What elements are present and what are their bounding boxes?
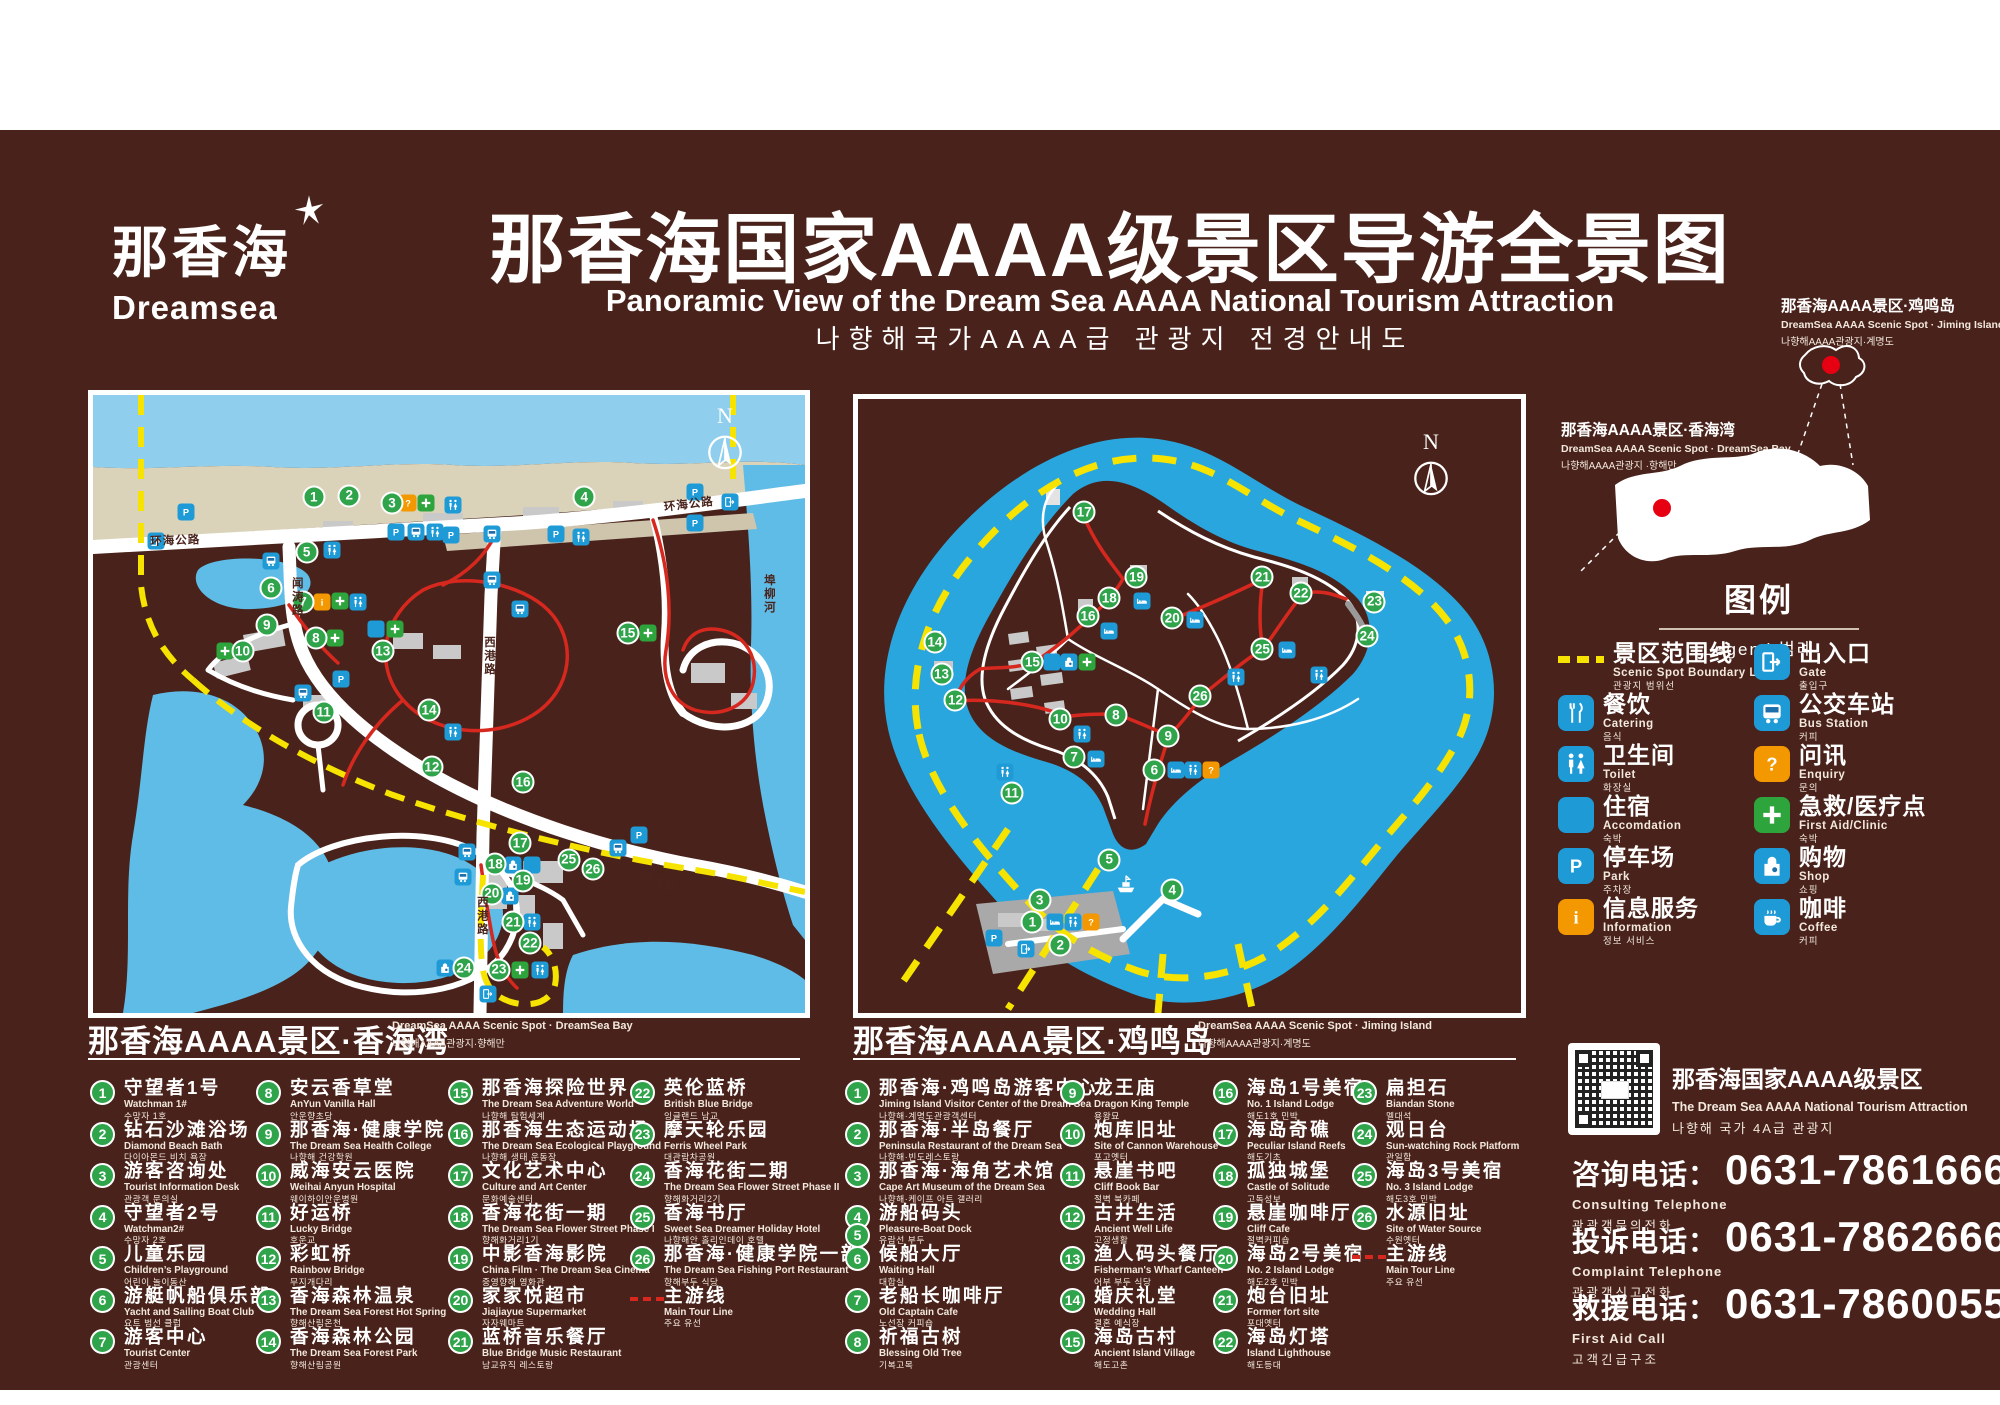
poster-title-cn: 那香海国家AAAA级景区导游全景图 bbox=[489, 188, 1731, 298]
legend-label-cn: 景区范围线 bbox=[1613, 642, 1775, 665]
aid-map-icon bbox=[327, 629, 344, 646]
item-number-badge: 17 bbox=[448, 1163, 473, 1188]
legend-label-kr: 주차장 bbox=[1603, 886, 1675, 896]
item-number-badge: 22 bbox=[1213, 1329, 1238, 1354]
legend-label-cn: 餐饮 bbox=[1603, 693, 1654, 716]
legend-label-kr: 출입구 bbox=[1799, 682, 1871, 692]
map-marker-11: 11 bbox=[1000, 782, 1023, 805]
item-name-cn: 水源旧址 bbox=[1386, 1204, 1582, 1223]
p-map-icon: P bbox=[177, 504, 194, 521]
legend-label-cn: 公交车站 bbox=[1799, 693, 1895, 716]
p-map-icon: P bbox=[332, 671, 349, 688]
list-item-2: 2那香海·半岛餐厅Peninsula Restaurant of the Dre… bbox=[845, 1121, 1075, 1163]
map-marker-3: 3 bbox=[1028, 889, 1051, 912]
road-label: 埠柳河 bbox=[761, 574, 777, 615]
item-number-badge: 2 bbox=[845, 1122, 870, 1147]
item-number-badge: 25 bbox=[1352, 1163, 1377, 1188]
item-name-cn: 那香海·健康学院一部 bbox=[664, 1245, 860, 1264]
p-map-icon: P bbox=[387, 524, 404, 541]
item-number-badge: 1 bbox=[845, 1080, 870, 1105]
p-map-icon: P bbox=[443, 527, 460, 544]
item-name-cn: 老船长咖啡厅 bbox=[879, 1287, 1075, 1306]
svg-text:i: i bbox=[1573, 908, 1578, 928]
item-number-badge: 20 bbox=[1213, 1246, 1238, 1271]
legend-label-en: Gate bbox=[1799, 668, 1871, 680]
phone-entry-3: 救援电话：0631-7860055First Aid Call고객긴급구조 bbox=[1572, 1280, 1972, 1368]
road-label: 西港路 bbox=[474, 896, 490, 937]
item-name-cn: 香海花街二期 bbox=[664, 1162, 860, 1181]
compass-n-label: N bbox=[717, 403, 733, 429]
legend-item-park: P停车场Park주차장 bbox=[1558, 846, 1754, 897]
map-marker-18: 18 bbox=[1098, 586, 1121, 609]
bus-map-icon bbox=[483, 526, 500, 543]
item-number-badge: 4 bbox=[90, 1205, 115, 1230]
legend-item-boundary: 景区范围线Scenic Spot Boundary Line관광지 범위선 bbox=[1558, 642, 1754, 693]
map-marker-5: 5 bbox=[1098, 848, 1121, 871]
cater-map-icon bbox=[367, 621, 384, 638]
road-label: 环海公路 bbox=[150, 531, 201, 549]
q-map-icon: ? bbox=[1082, 914, 1099, 931]
item-name-kr: 주요 유선 bbox=[1386, 1278, 1582, 1287]
item-name-en: Main Tour Line bbox=[1386, 1266, 1582, 1276]
map-marker-25: 25 bbox=[1251, 637, 1274, 660]
p-map-icon: P bbox=[547, 526, 564, 543]
toilet-icon bbox=[1558, 746, 1594, 782]
list-item-21: 21炮台旧址Former fort site포대옛터 bbox=[1213, 1287, 1443, 1329]
map-marker-20: 20 bbox=[1161, 607, 1184, 630]
item-name-cn: 扁担石 bbox=[1386, 1079, 1582, 1098]
wc-map-icon bbox=[426, 524, 443, 541]
item-name-en: Pleasure-Boat Dock bbox=[879, 1225, 1075, 1235]
legend-label-en: Enquiry bbox=[1799, 770, 1847, 782]
list-item-4: 45游船码头Pleasure-Boat Dock유람선 부두 bbox=[845, 1204, 1075, 1246]
poster-canvas: 那香海 Dreamsea 那香海国家AAAA级景区导游全景图 Panoramic… bbox=[0, 0, 2000, 1405]
map-marker-21: 21 bbox=[1251, 566, 1274, 589]
aid-map-icon bbox=[512, 961, 529, 978]
item-number-badge: 3 bbox=[845, 1163, 870, 1188]
phone-label-kr: 고객긴급구조 bbox=[1572, 1349, 1972, 1368]
aid-map-icon bbox=[418, 495, 435, 512]
map-marker-1: 1 bbox=[302, 485, 325, 508]
svg-text:P: P bbox=[1570, 856, 1582, 877]
legend-item-catering: 餐饮Catering음식 bbox=[1558, 693, 1754, 744]
bay-sea bbox=[93, 395, 805, 468]
map-marker-13: 13 bbox=[930, 663, 953, 686]
bed-map-icon bbox=[1278, 642, 1295, 659]
svg-text:P: P bbox=[692, 518, 698, 528]
legend-item-coffee: 咖啡Coffee커피 bbox=[1754, 897, 1960, 948]
bus-map-icon bbox=[295, 684, 312, 701]
legend-label-en: Information bbox=[1603, 923, 1699, 935]
item-number-badge: 9 bbox=[256, 1122, 281, 1147]
island-section-subtitle: DreamSea AAAA Scenic Spot · Jiming Islan… bbox=[1198, 1020, 1432, 1050]
item-name-en: Site of Water Source bbox=[1386, 1225, 1582, 1235]
item-number-badge: 19 bbox=[1213, 1205, 1238, 1230]
logo-en-text: Dreamsea bbox=[112, 289, 292, 327]
q-map-icon: ? bbox=[1202, 761, 1219, 778]
item-number-badge: 17 bbox=[1213, 1122, 1238, 1147]
bay-section-divider bbox=[88, 1058, 800, 1060]
item-name-cn: 主游线 bbox=[664, 1287, 860, 1306]
item-number-badge: 13 bbox=[256, 1288, 281, 1313]
inset-locator-map bbox=[1550, 280, 1960, 580]
item-name-en: British Blue Bridge bbox=[664, 1100, 860, 1110]
map-marker-9: 9 bbox=[255, 613, 278, 636]
item-number-badge: 21 bbox=[448, 1329, 473, 1354]
list-item-tour-line: 主游线Main Tour Line주요 유선 bbox=[630, 1287, 860, 1329]
p-map-icon: P bbox=[686, 514, 703, 531]
legend-label-cn: 急救/医疗点 bbox=[1799, 795, 1926, 818]
legend-label-cn: 出入口 bbox=[1799, 642, 1871, 665]
legend-label-en: Toilet bbox=[1603, 770, 1675, 782]
item-name-cn: 候船大厅 bbox=[879, 1245, 1075, 1264]
map-marker-13: 13 bbox=[371, 639, 394, 662]
item-name-cn: 英伦蓝桥 bbox=[664, 1079, 860, 1098]
wc-map-icon bbox=[1227, 668, 1244, 685]
gate-icon bbox=[1754, 644, 1790, 680]
wc-map-icon bbox=[524, 914, 541, 931]
aid-map-icon bbox=[1078, 653, 1095, 670]
qr-code bbox=[1568, 1043, 1660, 1135]
list-item-23: 23摩天轮乐园Ferris Wheel Park대관람차공원 bbox=[630, 1121, 860, 1163]
gate-map-icon bbox=[1017, 941, 1034, 958]
legend-label-kr: 문의 bbox=[1799, 784, 1847, 794]
logo-cn-text: 那香海 bbox=[112, 221, 292, 284]
item-name-en: Old Captain Cafe bbox=[879, 1308, 1075, 1318]
bed-map-icon bbox=[1168, 761, 1185, 778]
item-name-kr: 기복고목 bbox=[879, 1361, 1075, 1370]
map-marker-25: 25 bbox=[557, 848, 580, 871]
legend-label-kr: 숙박 bbox=[1799, 835, 1926, 845]
shop-map-icon bbox=[436, 959, 453, 976]
legend-item-accommodation: 住宿Accomdation숙박 bbox=[1558, 795, 1754, 846]
wc-map-icon bbox=[1064, 914, 1081, 931]
item-name-en: Blessing Old Tree bbox=[879, 1349, 1075, 1359]
list-item-24: 24香海花街二期The Dream Sea Flower Street Phas… bbox=[630, 1162, 860, 1204]
legend-divider bbox=[1659, 628, 1859, 630]
map-marker-11: 11 bbox=[312, 701, 335, 724]
map-marker-24: 24 bbox=[452, 956, 475, 979]
item-number-badge: 24 bbox=[1352, 1122, 1377, 1147]
map-marker-22: 22 bbox=[1289, 582, 1312, 605]
park-icon: P bbox=[1558, 848, 1594, 884]
map-marker-2: 2 bbox=[1049, 933, 1072, 956]
wc-map-icon bbox=[349, 594, 366, 611]
map-marker-18: 18 bbox=[484, 853, 507, 876]
map-marker-7: 7 bbox=[1063, 745, 1086, 768]
island-compass: N bbox=[1413, 429, 1449, 497]
list-item-1: 1那香海·鸡鸣岛游客中心Jiming Island Visitor Center… bbox=[845, 1079, 1075, 1121]
item-number-badge: 8 bbox=[845, 1329, 870, 1354]
item-number-badge: 10 bbox=[1060, 1122, 1085, 1147]
phone-number: 0631-7860055 bbox=[1725, 1280, 2000, 1328]
legend-label-kr: 관광지 범위선 bbox=[1613, 682, 1775, 692]
map-marker-6: 6 bbox=[260, 576, 283, 599]
phone-label-en: Consulting Telephone bbox=[1572, 1197, 1972, 1212]
road-label: 西港路 bbox=[481, 636, 497, 677]
item-name-en: Island Lighthouse bbox=[1247, 1349, 1443, 1359]
bus-map-icon bbox=[458, 844, 475, 861]
list-item-22: 22海岛灯塔Island Lighthouse해도등대 bbox=[1213, 1328, 1443, 1370]
item-number-badge: 7 bbox=[90, 1329, 115, 1354]
phone-number: 0631-7861666 bbox=[1725, 1146, 2000, 1194]
phone-label-cn: 救援电话： bbox=[1572, 1287, 1717, 1327]
item-number-badge: 20 bbox=[448, 1288, 473, 1313]
map-marker-17: 17 bbox=[1073, 500, 1096, 523]
inset-bay-coast-shape bbox=[1615, 449, 1870, 562]
bay-map: N ?PPPPPPiPP1234567891011121314151617181… bbox=[88, 390, 810, 1018]
coffee-icon bbox=[1754, 899, 1790, 935]
svg-text:?: ? bbox=[1766, 754, 1777, 775]
map-marker-8: 8 bbox=[1104, 704, 1127, 727]
legend-label-cn: 卫生间 bbox=[1603, 744, 1675, 767]
item-name-cn: 主游线 bbox=[1386, 1245, 1582, 1264]
p-map-icon: P bbox=[631, 827, 648, 844]
wc-map-icon bbox=[997, 763, 1014, 780]
map-marker-10: 10 bbox=[1049, 707, 1072, 730]
item-name-kr: 남교유직 레스토랑 bbox=[482, 1361, 678, 1370]
qr-caption-cn: 那香海国家AAAA级景区 bbox=[1672, 1060, 1968, 1094]
item-number-badge: 11 bbox=[1060, 1163, 1085, 1188]
wc-map-icon bbox=[323, 541, 340, 558]
legend-label-kr: 음식 bbox=[1603, 733, 1654, 743]
information-icon: i bbox=[1558, 899, 1594, 935]
inset-bay-marker-dot bbox=[1653, 499, 1671, 517]
road-label: 闻涛路 bbox=[289, 577, 305, 618]
compass-icon bbox=[1413, 457, 1449, 497]
item-number-badge: 24 bbox=[630, 1163, 655, 1188]
map-marker-15: 15 bbox=[616, 621, 639, 644]
qr-caption-en: The Dream Sea AAAA National Tourism Attr… bbox=[1672, 1100, 1968, 1114]
map-marker-21: 21 bbox=[502, 911, 525, 934]
gate-map-icon bbox=[480, 986, 497, 1003]
item-name-en: Peninsula Restaurant of the Dream Sea bbox=[879, 1142, 1075, 1152]
legend-label-cn: 住宿 bbox=[1603, 795, 1681, 818]
item-number-badge: 14 bbox=[1060, 1288, 1085, 1313]
compass-icon bbox=[707, 431, 743, 471]
aid-map-icon bbox=[332, 592, 349, 609]
item-number-badge: 11 bbox=[256, 1205, 281, 1230]
legend-label-kr: 화장실 bbox=[1603, 784, 1675, 794]
item-name-kr: 주요 유선 bbox=[664, 1319, 860, 1328]
phone-label-cn: 咨询电话： bbox=[1572, 1153, 1717, 1193]
phone-label-en: Complaint Telephone bbox=[1572, 1264, 1972, 1279]
item-number-badge: 3 bbox=[90, 1163, 115, 1188]
svg-text:P: P bbox=[636, 830, 642, 840]
svg-text:P: P bbox=[991, 933, 997, 943]
legend-label-kr: 커피 bbox=[1799, 733, 1895, 743]
phone-number: 0631-7862666 bbox=[1725, 1213, 2000, 1261]
bed-map-icon bbox=[1046, 914, 1063, 931]
list-item-26: 26那香海·健康学院一部The Dream Sea Fishing Port R… bbox=[630, 1245, 860, 1287]
item-name-en: The Dream Sea Flower Street Phase II bbox=[664, 1183, 860, 1193]
item-name-en: Biandan Stone bbox=[1386, 1100, 1582, 1110]
bus-map-icon bbox=[263, 552, 280, 569]
map-marker-23: 23 bbox=[1363, 590, 1386, 613]
legend-label-en: Shop bbox=[1799, 872, 1847, 884]
firstaid-icon bbox=[1754, 797, 1790, 833]
item-number-badge: 26 bbox=[1352, 1205, 1377, 1230]
legend-grid: 景区范围线Scenic Spot Boundary Line관광지 범위선出入口… bbox=[1558, 642, 1960, 948]
map-marker-12: 12 bbox=[420, 756, 443, 779]
item-name-en: The Dream Sea Fishing Port Restaurant bbox=[664, 1266, 860, 1276]
list-item-tour-line: 主游线Main Tour Line주요 유선 bbox=[1352, 1245, 1582, 1287]
legend-label-kr: 쇼핑 bbox=[1799, 886, 1847, 896]
legend-label-kr: 정보 서비스 bbox=[1603, 937, 1699, 947]
item-number-badge: 5 bbox=[845, 1223, 870, 1248]
qr-caption-kr: 나향해 국가 4A급 관광지 bbox=[1672, 1118, 1968, 1137]
map-marker-15: 15 bbox=[1021, 650, 1044, 673]
bus-map-icon bbox=[455, 869, 472, 886]
map-marker-14: 14 bbox=[923, 631, 946, 654]
legend-item-gate: 出入口Gate출입구 bbox=[1754, 642, 1960, 693]
item-name-cn: 摩天轮乐园 bbox=[664, 1121, 860, 1140]
bay-section-subtitle: DreamSea AAAA Scenic Spot · DreamSea Bay… bbox=[392, 1020, 633, 1050]
item-number-badge: 22 bbox=[630, 1080, 655, 1105]
item-name-en: Sun-watching Rock Platform bbox=[1386, 1142, 1582, 1152]
list-item-25: 25香海书厅Sweet Sea Dreamer Holiday Hotel나향해… bbox=[630, 1204, 860, 1246]
item-number-badge: 8 bbox=[256, 1080, 281, 1105]
map-marker-22: 22 bbox=[519, 932, 542, 955]
list-item-7: 7老船长咖啡厅Old Captain Cafe노선장 커피숍 bbox=[845, 1287, 1075, 1329]
list-column: 1那香海·鸡鸣岛游客中心Jiming Island Visitor Center… bbox=[845, 1079, 1075, 1370]
bay-compass: N bbox=[707, 403, 743, 471]
item-name-en: Jiming Island Visitor Center of the Drea… bbox=[879, 1100, 1075, 1110]
bed-map-icon bbox=[1088, 750, 1105, 767]
phone-label-en: First Aid Call bbox=[1572, 1331, 1972, 1346]
item-name-en: Main Tour Line bbox=[664, 1308, 860, 1318]
svg-text:i: i bbox=[321, 597, 324, 607]
item-number-badge: 13 bbox=[1060, 1246, 1085, 1271]
item-number-badge: 21 bbox=[1213, 1288, 1238, 1313]
svg-text:P: P bbox=[182, 508, 188, 518]
legend-label-cn: 信息服务 bbox=[1603, 897, 1699, 920]
wc-map-icon bbox=[532, 961, 549, 978]
shop-map-icon bbox=[1061, 653, 1078, 670]
inset-jiming-marker-dot bbox=[1822, 356, 1840, 374]
catering-icon bbox=[1558, 695, 1594, 731]
legend-label-cn: 停车场 bbox=[1603, 846, 1675, 869]
list-item-24: 24观日台Sun-watching Rock Platform관일함 bbox=[1352, 1121, 1582, 1163]
qr-center-logo bbox=[1601, 1081, 1629, 1099]
list-item-6: 6候船大厅Waiting Hall대합실 bbox=[845, 1245, 1075, 1287]
item-number-badge: 15 bbox=[1060, 1329, 1085, 1354]
legend-label-cn: 购物 bbox=[1799, 846, 1847, 869]
map-marker-6: 6 bbox=[1143, 758, 1166, 781]
wc-map-icon bbox=[1074, 726, 1091, 743]
bus-map-icon bbox=[609, 839, 626, 856]
item-name-en: Waiting Hall bbox=[879, 1266, 1075, 1276]
item-name-cn: 海岛3号美宿 bbox=[1386, 1162, 1582, 1181]
item-name-cn: 那香海·海角艺术馆 bbox=[879, 1162, 1075, 1181]
list-item-8: 8祈福古树Blessing Old Tree기복고목 bbox=[845, 1328, 1075, 1370]
map-marker-14: 14 bbox=[418, 699, 441, 722]
legend-label-en: Bus Station bbox=[1799, 719, 1895, 731]
item-number-badge: 9 bbox=[1060, 1080, 1085, 1105]
item-name-cn: 那香海·鸡鸣岛游客中心 bbox=[879, 1079, 1075, 1098]
boundary-line-icon bbox=[1558, 656, 1604, 663]
item-number-badge: 7 bbox=[845, 1288, 870, 1313]
legend-label-cn: 问讯 bbox=[1799, 744, 1847, 767]
map-marker-10: 10 bbox=[231, 639, 254, 662]
item-number-badge: 16 bbox=[1213, 1080, 1238, 1105]
legend-item-information: i信息服务Information정보 서비스 bbox=[1558, 897, 1754, 948]
map-marker-3: 3 bbox=[381, 492, 404, 515]
item-name-en: No. 3 Island Lodge bbox=[1386, 1183, 1582, 1193]
item-number-badge: 6 bbox=[90, 1288, 115, 1313]
legend-label-cn: 咖啡 bbox=[1799, 897, 1847, 920]
wc-map-icon bbox=[1310, 666, 1327, 683]
legend-item-bus: 公交车站Bus Station커피 bbox=[1754, 693, 1960, 744]
legend-label-kr: 커피 bbox=[1799, 937, 1847, 947]
shop-icon bbox=[1754, 848, 1790, 884]
svg-text:?: ? bbox=[1208, 765, 1214, 775]
map-marker-1: 1 bbox=[1021, 911, 1044, 934]
svg-text:P: P bbox=[338, 675, 344, 685]
map-marker-16: 16 bbox=[512, 770, 535, 793]
tour-line-icon bbox=[1352, 1255, 1390, 1259]
bus-map-icon bbox=[483, 572, 500, 589]
legend-label-en: First Aid/Clinic bbox=[1799, 821, 1926, 833]
map-marker-5: 5 bbox=[295, 540, 318, 563]
item-number-badge: 23 bbox=[630, 1122, 655, 1147]
bus-icon bbox=[1754, 695, 1790, 731]
list-item-23: 23扁担石Biandan Stone멜대석 bbox=[1352, 1079, 1582, 1121]
svg-text:P: P bbox=[448, 531, 454, 541]
map-marker-9: 9 bbox=[1157, 725, 1180, 748]
svg-text:P: P bbox=[553, 529, 559, 539]
island-map: N ?P?12345678910111213141516171819202122… bbox=[853, 394, 1526, 1018]
p-map-icon: P bbox=[985, 930, 1002, 947]
item-name-en: Blue Bridge Music Restaurant bbox=[482, 1349, 678, 1359]
legend-item-enquiry: ?问讯Enquiry문의 bbox=[1754, 744, 1960, 795]
wc-map-icon bbox=[572, 529, 589, 546]
list-item-3: 3那香海·海角艺术馆Cape Art Museum of the Dream S… bbox=[845, 1162, 1075, 1204]
gate-map-icon bbox=[722, 493, 739, 510]
item-name-cn: 香海书厅 bbox=[664, 1204, 860, 1223]
item-number-badge: 5 bbox=[90, 1246, 115, 1271]
tour-line-icon bbox=[630, 1297, 668, 1301]
item-name-kr: 해도등대 bbox=[1247, 1361, 1443, 1370]
item-number-badge: 14 bbox=[256, 1329, 281, 1354]
map-marker-4: 4 bbox=[1161, 879, 1184, 902]
legend-label-kr: 숙박 bbox=[1603, 835, 1681, 845]
bed-map-icon bbox=[1101, 623, 1118, 640]
bed-map-icon bbox=[1133, 593, 1150, 610]
legend-item-shop: 购物Shop쇼핑 bbox=[1754, 846, 1960, 897]
map-marker-17: 17 bbox=[509, 832, 532, 855]
item-name-en: Sweet Sea Dreamer Holiday Hotel bbox=[664, 1225, 860, 1235]
item-name-cn: 炮台旧址 bbox=[1247, 1287, 1443, 1306]
list-item-25: 25海岛3号美宿No. 3 Island Lodge해도3호 민박 bbox=[1352, 1162, 1582, 1204]
item-name-cn: 观日台 bbox=[1386, 1121, 1582, 1140]
item-name-cn: 那香海·半岛餐厅 bbox=[879, 1121, 1075, 1140]
svg-text:P: P bbox=[393, 527, 399, 537]
wc-map-icon bbox=[1185, 761, 1202, 778]
item-number-badge: 12 bbox=[256, 1246, 281, 1271]
map-marker-26: 26 bbox=[581, 858, 604, 881]
item-number-badge: 15 bbox=[448, 1080, 473, 1105]
item-name-cn: 祈福古树 bbox=[879, 1328, 1075, 1347]
enquiry-icon: ? bbox=[1754, 746, 1790, 782]
map-marker-24: 24 bbox=[1356, 625, 1379, 648]
legend-item-firstaid: 急救/医疗点First Aid/Clinic숙박 bbox=[1754, 795, 1960, 846]
legend-label-en: Coffee bbox=[1799, 923, 1847, 935]
legend-label-en: Scenic Spot Boundary Line bbox=[1613, 668, 1775, 680]
qr-caption: 那香海国家AAAA级景区 The Dream Sea AAAA National… bbox=[1672, 1060, 1968, 1137]
item-name-en: Cape Art Museum of the Dream Sea bbox=[879, 1183, 1075, 1193]
i-map-icon: i bbox=[314, 594, 331, 611]
